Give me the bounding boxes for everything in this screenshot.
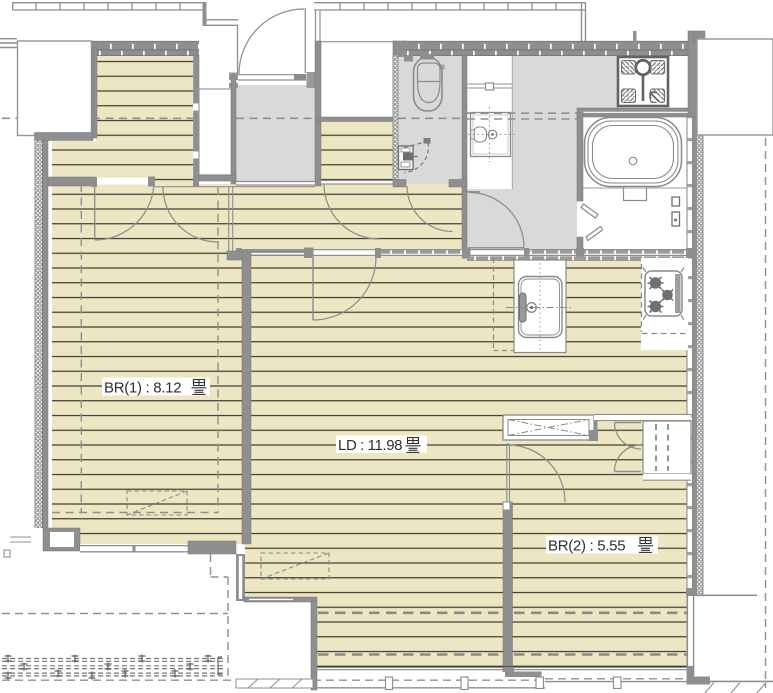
svg-text:BR(1) : 8.12: BR(1) : 8.12 bbox=[104, 380, 181, 397]
svg-text:LD : 11.98: LD : 11.98 bbox=[338, 437, 402, 454]
svg-text:BR(2) : 5.55: BR(2) : 5.55 bbox=[548, 538, 625, 555]
